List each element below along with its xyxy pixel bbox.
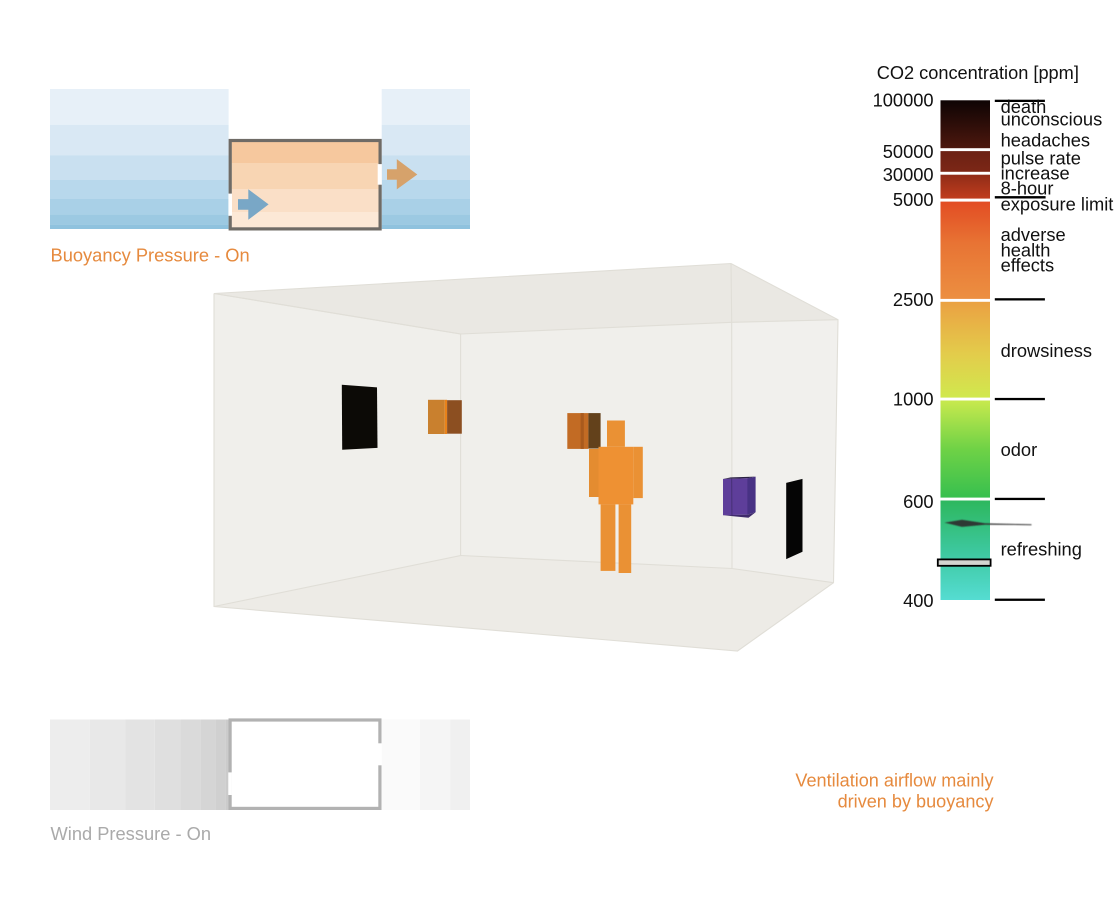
svg-text:Wind Pressure - On: Wind Pressure - On [51, 823, 212, 844]
svg-text:600: 600 [903, 491, 934, 512]
svg-text:100000: 100000 [873, 90, 934, 111]
svg-text:Ventilation airflow mainly: Ventilation airflow mainly [795, 771, 994, 791]
svg-text:5000: 5000 [893, 189, 934, 210]
svg-text:drowsiness: drowsiness [1001, 340, 1092, 361]
svg-text:unconscious: unconscious [1001, 108, 1103, 129]
svg-text:refreshing: refreshing [1001, 539, 1082, 560]
svg-text:odor: odor [1001, 439, 1038, 460]
svg-text:driven by buoyancy: driven by buoyancy [838, 792, 995, 812]
svg-text:2500: 2500 [893, 289, 934, 310]
svg-text:400: 400 [903, 590, 934, 611]
svg-text:CO2 concentration [ppm]: CO2 concentration [ppm] [877, 63, 1079, 83]
svg-text:1000: 1000 [893, 388, 934, 409]
svg-text:30000: 30000 [883, 164, 934, 185]
svg-text:effects: effects [1001, 255, 1055, 276]
svg-text:50000: 50000 [883, 141, 934, 162]
svg-text:Buoyancy Pressure - On: Buoyancy Pressure - On [51, 245, 250, 266]
svg-text:exposure limit: exposure limit [1001, 193, 1114, 214]
